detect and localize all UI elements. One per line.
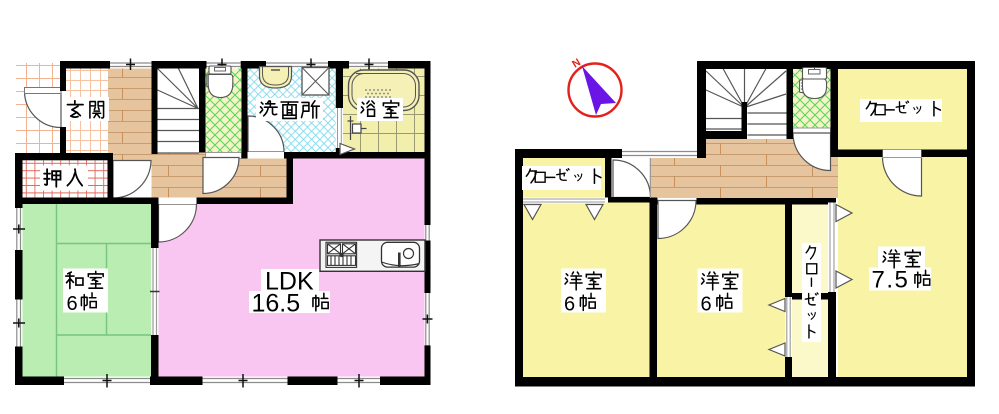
svg-text:6: 6 <box>701 294 712 316</box>
svg-text:6: 6 <box>564 294 575 316</box>
svg-text:7.5: 7.5 <box>872 267 910 294</box>
svg-text:16.5: 16.5 <box>252 290 301 318</box>
svg-text:6: 6 <box>67 293 78 315</box>
